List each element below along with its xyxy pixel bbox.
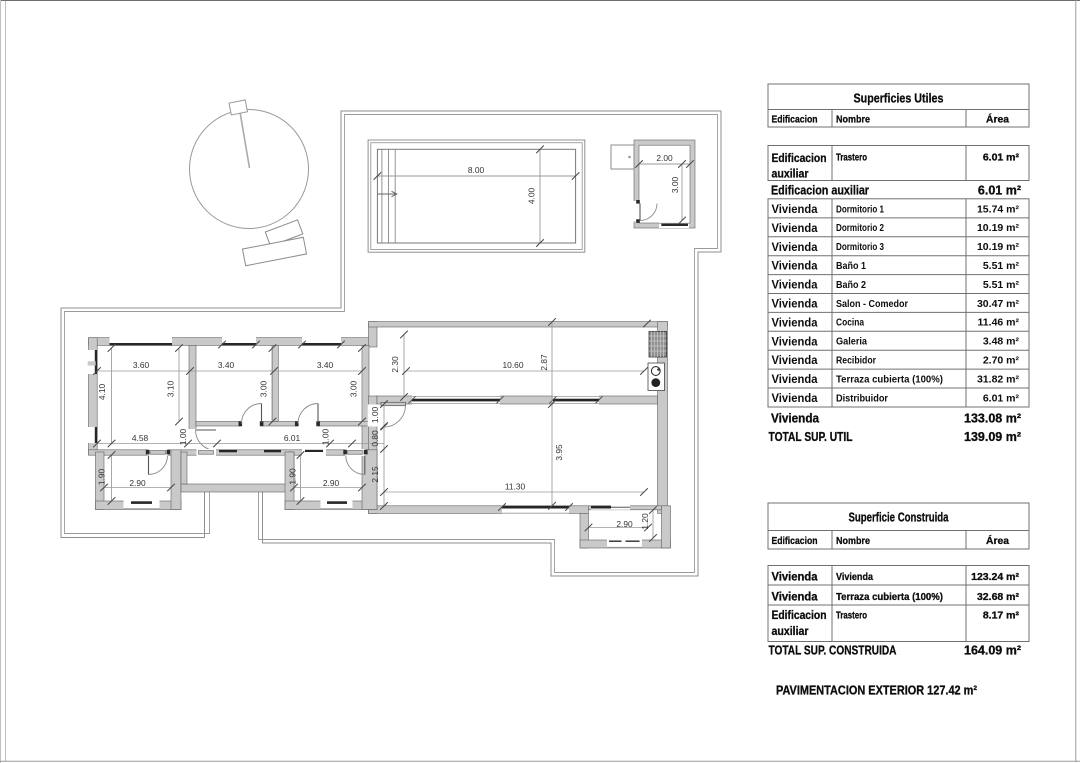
svg-text:Vivienda: Vivienda — [772, 317, 819, 329]
svg-text:1.90: 1.90 — [97, 469, 107, 486]
svg-text:3.40: 3.40 — [218, 360, 235, 370]
svg-text:5.51 m²: 5.51 m² — [983, 279, 1020, 291]
svg-text:2.70 m²: 2.70 m² — [983, 355, 1020, 367]
svg-text:Superficie Construida: Superficie Construida — [849, 510, 950, 525]
svg-text:TOTAL SUP. CONSTRUIDA: TOTAL SUP. CONSTRUIDA — [769, 644, 897, 658]
svg-text:Vivienda: Vivienda — [836, 571, 873, 583]
svg-text:3.00: 3.00 — [670, 177, 680, 194]
svg-text:Área: Área — [986, 113, 1009, 126]
svg-text:31.82 m²: 31.82 m² — [977, 373, 1020, 385]
svg-text:Edificacion: Edificacion — [772, 114, 818, 126]
svg-text:Superficies Utiles: Superficies Utiles — [854, 91, 944, 106]
svg-text:11.30: 11.30 — [505, 482, 526, 492]
svg-text:Edificacion: Edificacion — [772, 535, 818, 547]
svg-text:Vivienda: Vivienda — [772, 223, 819, 235]
svg-text:2.15: 2.15 — [370, 466, 380, 483]
svg-text:auxiliar: auxiliar — [772, 167, 809, 181]
svg-text:Vivienda: Vivienda — [772, 374, 819, 386]
svg-text:10.19 m²: 10.19 m² — [977, 241, 1020, 253]
svg-text:10.60: 10.60 — [503, 360, 524, 370]
svg-text:Vivienda: Vivienda — [772, 261, 819, 273]
svg-text:Edificacion: Edificacion — [772, 151, 827, 165]
svg-text:123.24 m²: 123.24 m² — [971, 571, 1019, 583]
svg-text:3.00: 3.00 — [349, 381, 359, 398]
svg-text:Nombre: Nombre — [836, 114, 870, 126]
svg-text:Cocina: Cocina — [836, 317, 864, 329]
svg-text:8.00: 8.00 — [468, 165, 485, 175]
svg-text:139.09 m²: 139.09 m² — [964, 430, 1021, 444]
svg-text:1.90: 1.90 — [288, 468, 298, 485]
svg-text:Vivienda: Vivienda — [772, 572, 819, 584]
svg-text:auxiliar: auxiliar — [772, 624, 809, 638]
svg-text:Vivienda: Vivienda — [772, 393, 819, 405]
svg-text:1.00: 1.00 — [321, 429, 331, 446]
svg-text:Galeria: Galeria — [836, 336, 867, 348]
svg-text:2.90: 2.90 — [129, 478, 146, 488]
svg-text:Vivienda: Vivienda — [772, 242, 819, 254]
svg-text:6.01 m²: 6.01 m² — [983, 392, 1020, 404]
svg-text:Dormitorio 1: Dormitorio 1 — [836, 203, 884, 215]
svg-text:Trastero: Trastero — [836, 609, 867, 621]
svg-text:Vivienda: Vivienda — [772, 336, 819, 348]
svg-text:Baño 2: Baño 2 — [836, 279, 866, 291]
svg-text:2.30: 2.30 — [390, 356, 400, 373]
svg-text:TOTAL SUP. UTIL: TOTAL SUP. UTIL — [769, 430, 853, 444]
svg-text:164.09 m²: 164.09 m² — [964, 644, 1021, 658]
svg-text:2.00: 2.00 — [656, 153, 673, 163]
svg-text:2.90: 2.90 — [323, 478, 340, 488]
svg-text:6.01: 6.01 — [284, 433, 301, 443]
svg-text:11.46 m²: 11.46 m² — [978, 317, 1020, 329]
svg-text:15.74 m²: 15.74 m² — [977, 203, 1020, 215]
svg-text:0.80: 0.80 — [370, 430, 380, 447]
svg-text:4.00: 4.00 — [527, 188, 537, 205]
svg-text:3.95: 3.95 — [554, 444, 564, 461]
svg-text:2.90: 2.90 — [616, 519, 633, 529]
svg-text:3.60: 3.60 — [133, 360, 150, 370]
svg-text:Terraza cubierta (100%): Terraza cubierta (100%) — [836, 591, 943, 603]
svg-text:Baño 1: Baño 1 — [836, 260, 866, 272]
svg-text:1.20: 1.20 — [640, 513, 650, 530]
svg-text:Edificacion auxiliar: Edificacion auxiliar — [771, 184, 869, 198]
svg-text:3.40: 3.40 — [317, 360, 334, 370]
svg-text:Distribuidor: Distribuidor — [836, 392, 888, 404]
svg-text:4.10: 4.10 — [97, 384, 107, 401]
svg-text:Edificacion: Edificacion — [772, 608, 827, 622]
svg-text:Vivienda: Vivienda — [772, 204, 819, 216]
svg-text:5.51 m²: 5.51 m² — [983, 260, 1020, 272]
svg-text:10.19 m²: 10.19 m² — [977, 222, 1020, 234]
svg-text:32.68 m²: 32.68 m² — [977, 591, 1020, 603]
svg-text:3.00: 3.00 — [259, 381, 269, 398]
svg-text:Vivienda: Vivienda — [772, 592, 819, 604]
svg-text:6.01 m²: 6.01 m² — [983, 152, 1020, 164]
svg-text:Trastero: Trastero — [836, 152, 867, 164]
svg-text:1.00: 1.00 — [178, 429, 188, 446]
svg-text:Nombre: Nombre — [836, 535, 870, 547]
svg-text:6.01 m²: 6.01 m² — [978, 184, 1021, 198]
svg-text:30.47 m²: 30.47 m² — [977, 298, 1020, 310]
svg-text:Vivienda: Vivienda — [771, 412, 820, 426]
svg-text:Vivienda: Vivienda — [772, 280, 819, 292]
svg-text:Vivienda: Vivienda — [772, 299, 819, 311]
svg-text:3.10: 3.10 — [166, 381, 176, 398]
svg-text:2.87: 2.87 — [539, 354, 549, 371]
svg-text:133.08 m²: 133.08 m² — [964, 412, 1021, 426]
svg-text:PAVIMENTACION EXTERIOR 127.42: PAVIMENTACION EXTERIOR 127.42 m² — [776, 684, 977, 698]
svg-text:Dormitorio 3: Dormitorio 3 — [836, 241, 884, 253]
svg-text:4.58: 4.58 — [132, 433, 149, 443]
svg-text:Área: Área — [986, 534, 1009, 547]
svg-text:Vivienda: Vivienda — [772, 355, 819, 367]
svg-text:3.48 m²: 3.48 m² — [983, 336, 1020, 348]
svg-text:Salon - Comedor: Salon - Comedor — [836, 298, 908, 310]
svg-text:Recibidor: Recibidor — [836, 355, 876, 367]
svg-text:Dormitorio 2: Dormitorio 2 — [836, 222, 884, 234]
svg-text:Terraza cubierta (100%): Terraza cubierta (100%) — [836, 373, 943, 385]
svg-text:1.00: 1.00 — [370, 407, 380, 424]
svg-text:8.17 m²: 8.17 m² — [983, 609, 1020, 621]
